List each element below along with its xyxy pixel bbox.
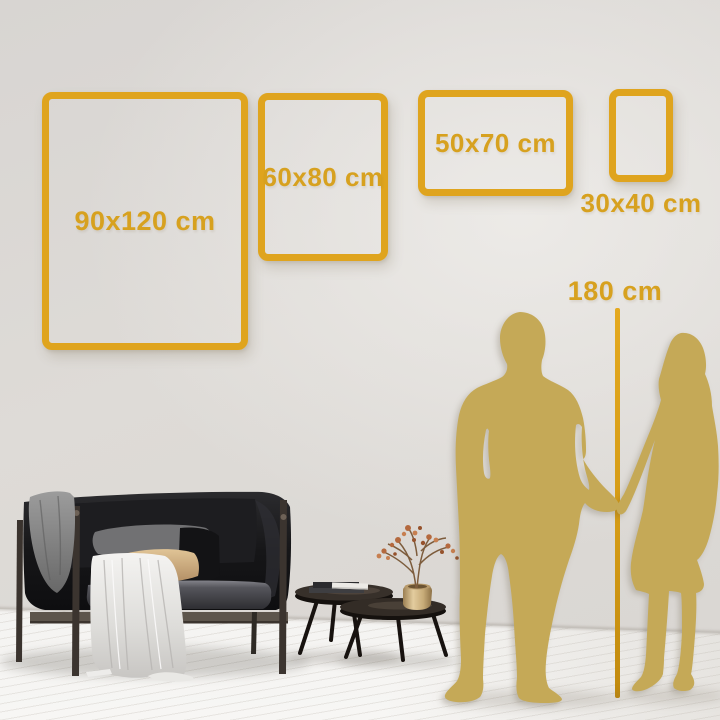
woman-silhouette [617, 333, 719, 691]
man-silhouette [445, 312, 619, 703]
couple-silhouettes [0, 0, 720, 720]
size-guide-scene: 90x120 cm 60x80 cm 50x70 cm 30x40 cm 180… [0, 0, 720, 720]
